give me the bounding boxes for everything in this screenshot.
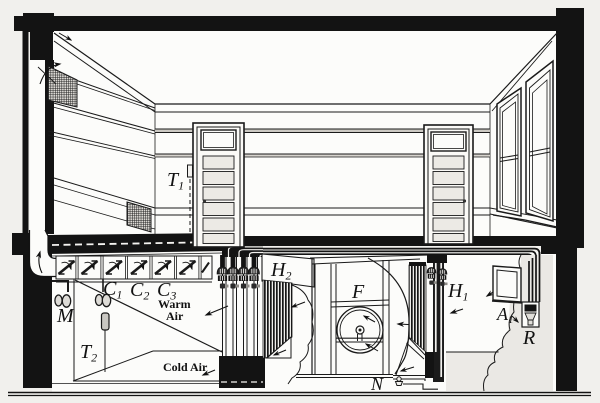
svg-text:F: F xyxy=(351,281,365,303)
svg-text:N: N xyxy=(370,374,384,394)
svg-text:Air: Air xyxy=(166,309,184,323)
svg-text:Cold Air: Cold Air xyxy=(163,360,208,374)
svg-text:R: R xyxy=(522,327,535,349)
svg-text:M: M xyxy=(56,305,75,327)
